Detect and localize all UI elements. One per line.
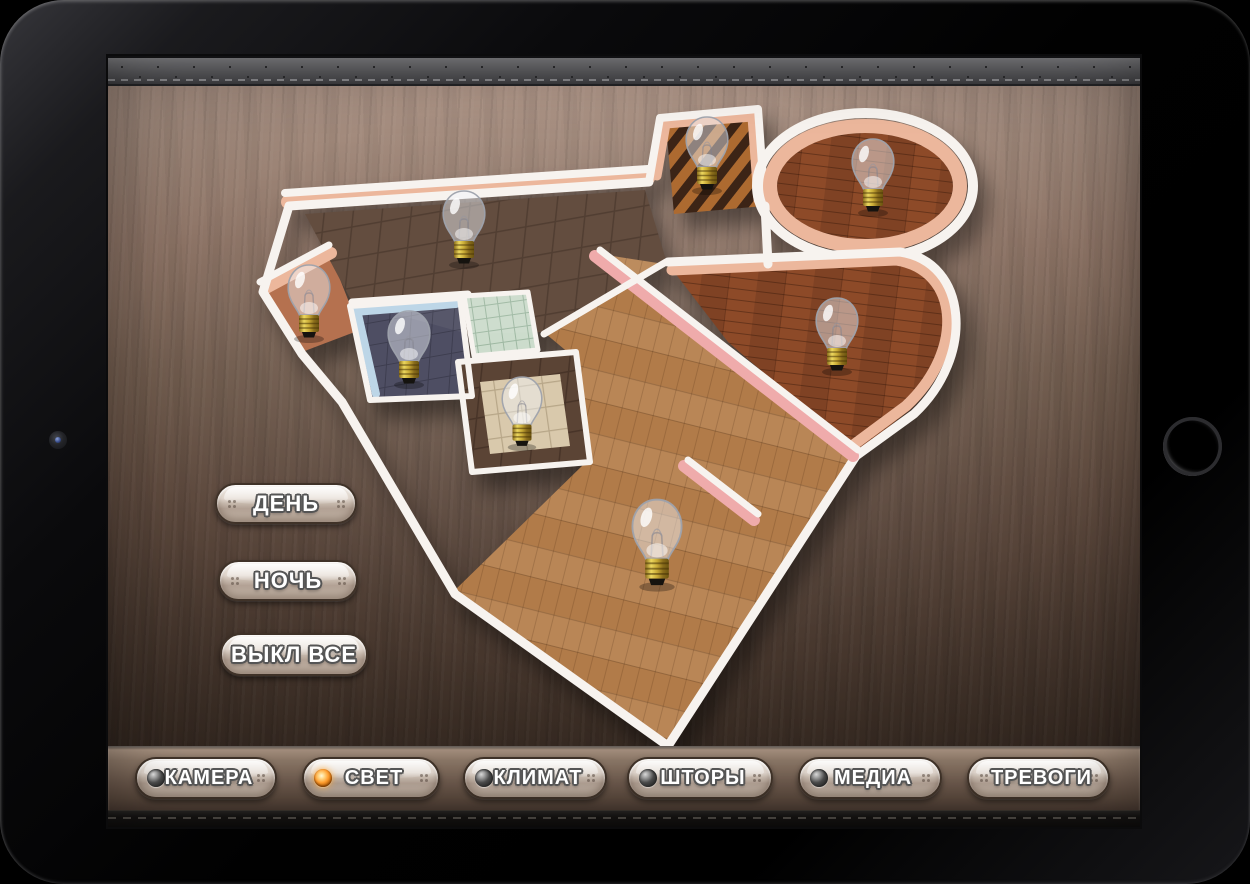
rivet-decoration (228, 500, 231, 503)
scene-button-all-off[interactable]: ВЫКЛ ВСЕ (220, 633, 368, 676)
rivet-decoration (980, 774, 983, 777)
toolbar-button-curtains[interactable]: ШТОРЫ (627, 757, 773, 799)
rivet-decoration (922, 774, 925, 777)
scene-button-day[interactable]: ДЕНЬ (215, 483, 357, 524)
toolbar-button-light[interactable]: СВЕТ (302, 757, 440, 799)
toolbar-button-label: СВЕТ (345, 767, 403, 790)
toolbar-button-label: КЛИМАТ (494, 767, 583, 790)
led-indicator-icon (314, 769, 332, 787)
scene-button-label: НОЧЬ (254, 568, 322, 594)
led-indicator-icon (475, 769, 493, 787)
scene-button-night[interactable]: НОЧЬ (218, 560, 358, 601)
led-indicator-icon (810, 769, 828, 787)
rivet-decoration (257, 774, 260, 777)
tablet-device: ДЕНЬ НОЧЬ ВЫКЛ ВСЕ КАМЕРА СВЕТ (0, 0, 1250, 884)
rivet-decoration (337, 500, 340, 503)
scene-button-label: ВЫКЛ ВСЕ (231, 642, 357, 668)
toolbar-button-label: ТРЕВОГИ (991, 767, 1092, 790)
front-camera-icon (49, 431, 67, 449)
home-button[interactable] (1163, 417, 1222, 476)
scene-button-label: ДЕНЬ (253, 491, 319, 517)
led-indicator-icon (147, 769, 165, 787)
toolbar-button-camera[interactable]: КАМЕРА (135, 757, 277, 799)
app-screen: ДЕНЬ НОЧЬ ВЫКЛ ВСЕ КАМЕРА СВЕТ (108, 56, 1140, 827)
toolbar-button-climate[interactable]: КЛИМАТ (463, 757, 607, 799)
rivet-decoration (231, 577, 234, 580)
toolbar-button-alarms[interactable]: ТРЕВОГИ (967, 757, 1110, 799)
toolbar-button-label: МЕДИА (834, 767, 912, 790)
rivet-decoration (587, 774, 590, 777)
toolbar-button-label: ШТОРЫ (660, 767, 745, 790)
led-indicator-icon (639, 769, 657, 787)
rivet-decoration (338, 577, 341, 580)
top-leather-band (108, 56, 1140, 86)
toolbar-button-label: КАМЕРА (165, 767, 254, 790)
bottom-leather-band (108, 810, 1140, 827)
floorplan (108, 56, 1140, 827)
rivet-decoration (753, 774, 756, 777)
rivet-decoration (420, 774, 423, 777)
toolbar-button-media[interactable]: МЕДИА (798, 757, 942, 799)
